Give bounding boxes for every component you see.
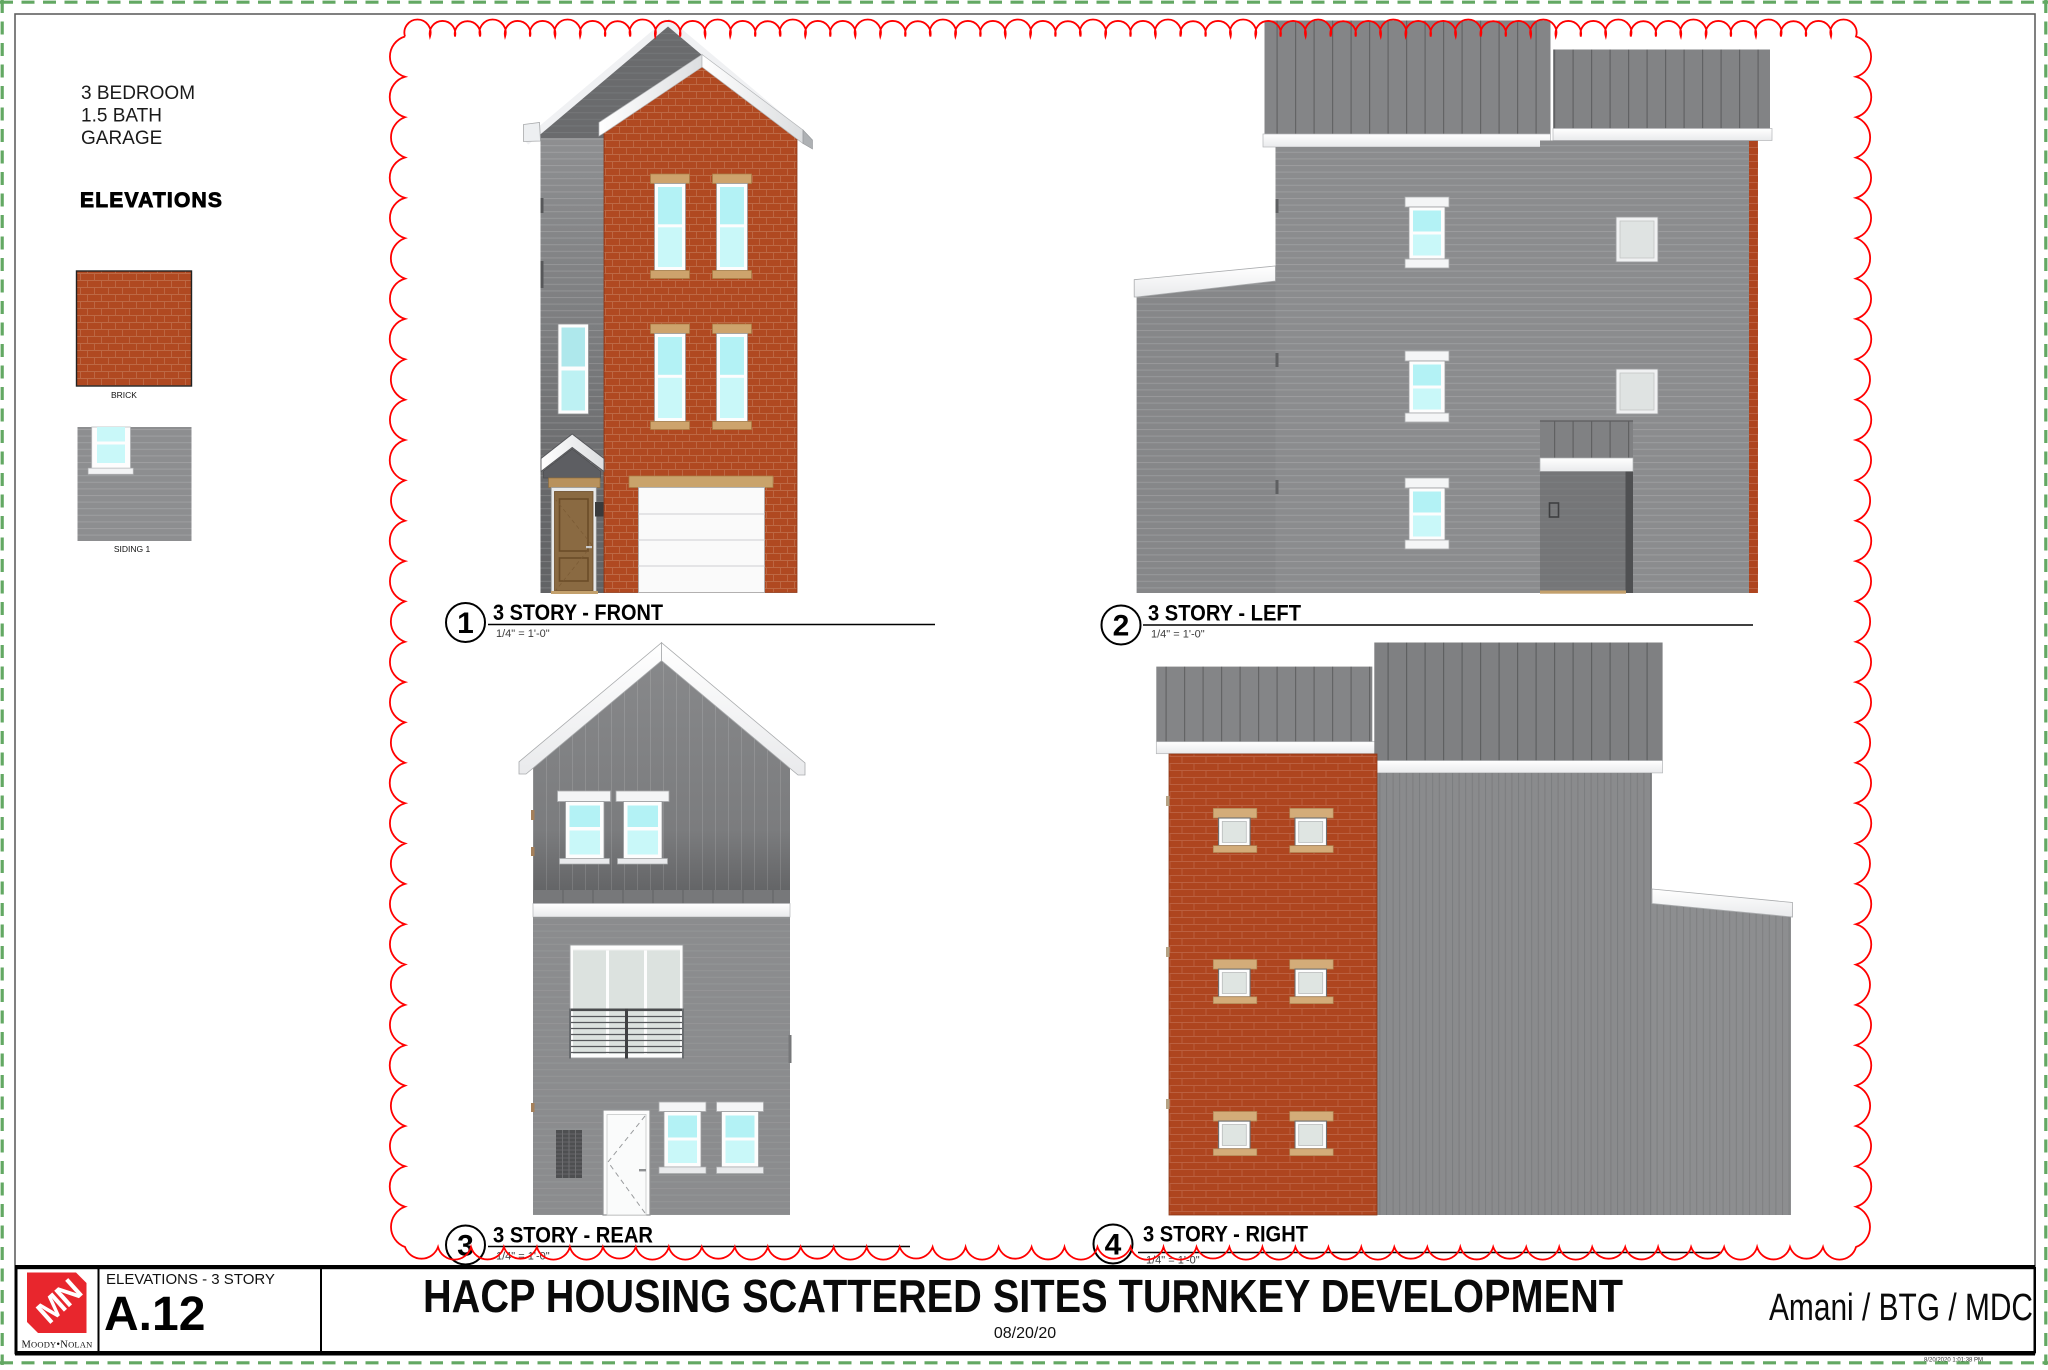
svg-text:3 STORY - REAR: 3 STORY - REAR [493, 1223, 653, 1248]
svg-text:3 STORY - LEFT: 3 STORY - LEFT [1148, 601, 1302, 626]
svg-text:3 BEDROOM: 3 BEDROOM [81, 83, 195, 104]
svg-text:1/4" = 1'-0": 1/4" = 1'-0" [496, 1251, 550, 1263]
svg-text:HACP HOUSING SCATTERED SITES T: HACP HOUSING SCATTERED SITES TURNKEY DEV… [423, 1270, 1623, 1322]
svg-text:3 STORY - RIGHT: 3 STORY - RIGHT [1143, 1222, 1309, 1247]
svg-text:ELEVATIONS - 3 STORY: ELEVATIONS - 3 STORY [106, 1271, 275, 1288]
svg-text:A.12: A.12 [104, 1288, 205, 1341]
svg-text:ELEVATIONS: ELEVATIONS [80, 189, 223, 212]
svg-text:SIDING 1: SIDING 1 [114, 544, 151, 554]
svg-text:8/20/2020 1:01:38 PM: 8/20/2020 1:01:38 PM [1924, 1358, 1983, 1364]
svg-text:MOODY•NOLAN: MOODY•NOLAN [22, 1340, 93, 1351]
svg-text:1.5 BATH: 1.5 BATH [81, 106, 162, 127]
svg-text:BRICK: BRICK [111, 390, 137, 400]
svg-text:1/4" = 1'-0": 1/4" = 1'-0" [496, 628, 550, 640]
svg-text:08/20/20: 08/20/20 [994, 1325, 1056, 1342]
svg-text:Amani / BTG / MDC: Amani / BTG / MDC [1769, 1287, 2033, 1329]
svg-text:1: 1 [457, 607, 474, 640]
svg-text:3 STORY - FRONT: 3 STORY - FRONT [493, 600, 664, 625]
svg-text:1/4" = 1'-0": 1/4" = 1'-0" [1151, 629, 1205, 641]
svg-text:2: 2 [1113, 610, 1130, 643]
svg-text:1/4" = 1'-0": 1/4" = 1'-0" [1146, 1255, 1200, 1267]
svg-text:GARAGE: GARAGE [81, 128, 162, 149]
